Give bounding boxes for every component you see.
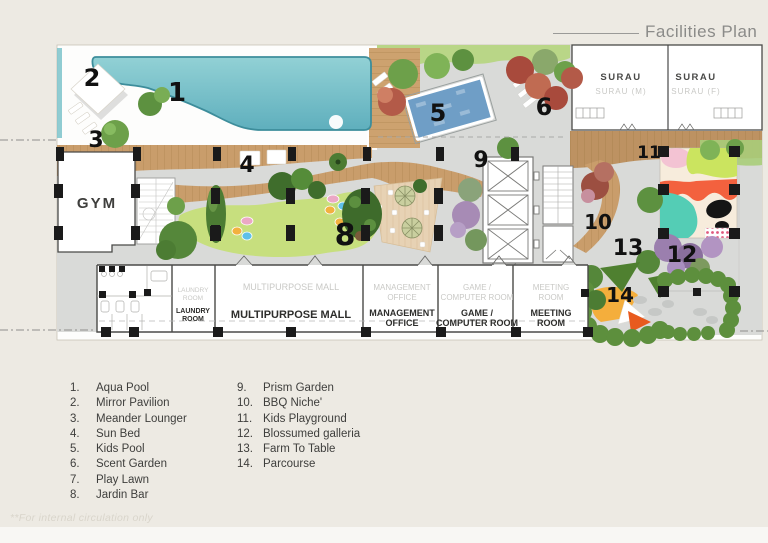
stair-core [543, 166, 573, 262]
legend-column-2: 9.Prism Garden 10.BBQ Niche' 11.Kids Pla… [237, 381, 360, 473]
facilities-plan-page: Facilities Plan [0, 0, 768, 543]
marker-1: 1 [168, 78, 186, 108]
surau-f-label: SURAU [675, 72, 716, 83]
legend-item: 11.Kids Playground [237, 412, 360, 427]
marker-8: 8 [335, 218, 356, 253]
marker-6: 6 [536, 93, 553, 121]
meeting-label-1: MEETING [530, 308, 571, 318]
marker-4: 4 [239, 153, 254, 178]
mgmt-faint-2: OFFICE [387, 293, 416, 302]
legend-item: 9.Prism Garden [237, 381, 360, 396]
game-label-2: COMPUTER ROOM [436, 318, 518, 328]
surau-f-sub: SURAU (F) [671, 87, 720, 96]
mall-faint: MULTIPURPOSE MALL [243, 282, 339, 292]
mgmt-faint-1: MANAGEMENT [373, 283, 430, 292]
legend-item: 2.Mirror Pavilion [70, 396, 187, 411]
legend-item: 12.Blossumed galleria [237, 427, 360, 442]
game-faint-1: GAME / [463, 283, 492, 292]
mgmt-label-2: OFFICE [386, 318, 419, 328]
marker-14: 14 [606, 283, 634, 307]
surau-m-label: SURAU [600, 72, 641, 83]
mall-label: MULTIPURPOSE MALL [231, 309, 351, 321]
marker-2: 2 [84, 64, 101, 92]
laundry-label-1: LAUNDRY [176, 308, 210, 315]
marker-3: 3 [88, 128, 103, 153]
legend-item: 7.Play Lawn [70, 473, 187, 488]
marker-12: 12 [667, 243, 698, 268]
footnote: **For internal circulation only [10, 512, 153, 524]
game-label-1: GAME / [461, 308, 494, 318]
laundry-label-2: ROOM [182, 316, 204, 323]
legend-column-1: 1.Aqua Pool 2.Mirror Pavilion 3.Meander … [70, 381, 187, 503]
legend-item: 14.Parcourse [237, 457, 360, 472]
legend-item: 6.Scent Garden [70, 457, 187, 472]
laundry-faint-1: LAUNDRY [178, 287, 210, 294]
legend-item: 10.BBQ Niche' [237, 396, 360, 411]
gym-label: GYM [77, 195, 117, 212]
legend-item: 8.Jardin Bar [70, 488, 187, 503]
kids-playground-area [660, 148, 737, 238]
surau-m-sub: SURAU (M) [595, 87, 646, 96]
legend-item: 5.Kids Pool [70, 442, 187, 457]
marker-13: 13 [613, 236, 644, 261]
lift-core [483, 157, 539, 272]
legend-item: 4.Sun Bed [70, 427, 187, 442]
mgmt-label-1: MANAGEMENT [369, 308, 435, 318]
legend-item: 13.Farm To Table [237, 442, 360, 457]
legend-item: 1.Aqua Pool [70, 381, 187, 396]
marker-10: 10 [584, 210, 612, 234]
marker-11: 11 [637, 143, 661, 163]
legend-item: 3.Meander Lounger [70, 412, 187, 427]
meeting-label-2: ROOM [537, 318, 565, 328]
laundry-faint-2: ROOM [183, 295, 203, 302]
bottom-strip [0, 527, 768, 543]
marker-5: 5 [430, 99, 447, 127]
game-faint-2: COMPUTER ROOM [441, 293, 514, 302]
meeting-faint-1: MEETING [533, 283, 569, 292]
meeting-faint-2: ROOM [539, 293, 564, 302]
marker-9: 9 [473, 148, 488, 173]
